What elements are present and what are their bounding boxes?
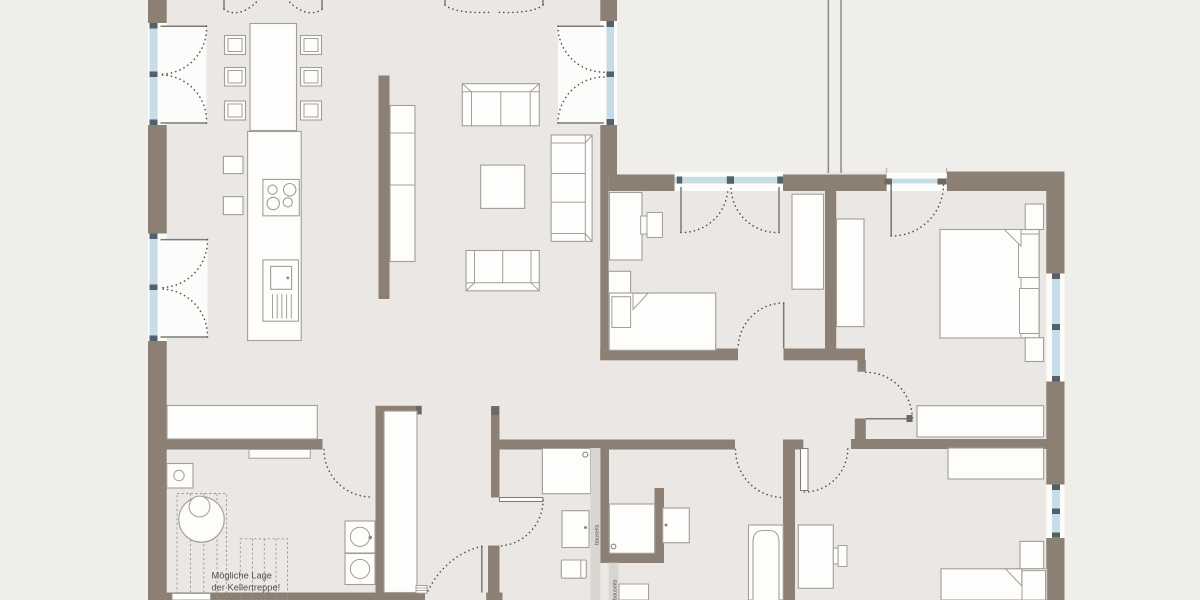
svg-text:Mögliche Lage: Mögliche Lage bbox=[212, 571, 272, 581]
svg-text:bauseits: bauseits bbox=[613, 579, 619, 600]
svg-text:der Kellertreppe!: der Kellertreppe! bbox=[212, 583, 281, 593]
svg-text:bauseits: bauseits bbox=[595, 524, 601, 545]
